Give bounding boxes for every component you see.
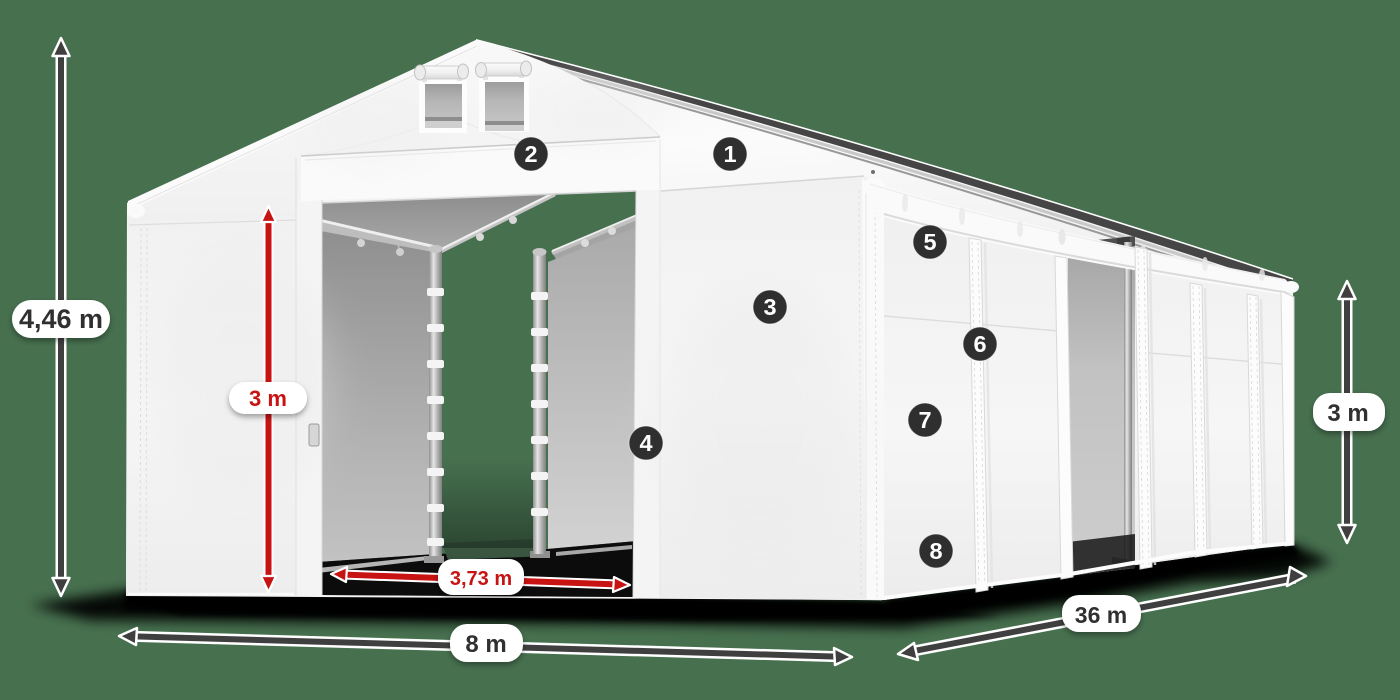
svg-text:6: 6 — [973, 331, 986, 357]
svg-text:3 m: 3 m — [249, 386, 287, 411]
svg-text:8 m: 8 m — [465, 631, 506, 658]
svg-text:2: 2 — [524, 141, 537, 167]
svg-text:5: 5 — [923, 229, 936, 255]
svg-text:4,46 m: 4,46 m — [19, 304, 103, 334]
svg-text:7: 7 — [918, 407, 931, 433]
svg-text:3 m: 3 m — [1327, 400, 1368, 427]
svg-text:8: 8 — [929, 538, 942, 564]
svg-text:3,73 m: 3,73 m — [450, 568, 512, 590]
svg-text:1: 1 — [723, 141, 736, 167]
svg-text:4: 4 — [639, 430, 652, 456]
svg-text:36 m: 36 m — [1075, 602, 1127, 628]
svg-text:3: 3 — [763, 294, 776, 320]
